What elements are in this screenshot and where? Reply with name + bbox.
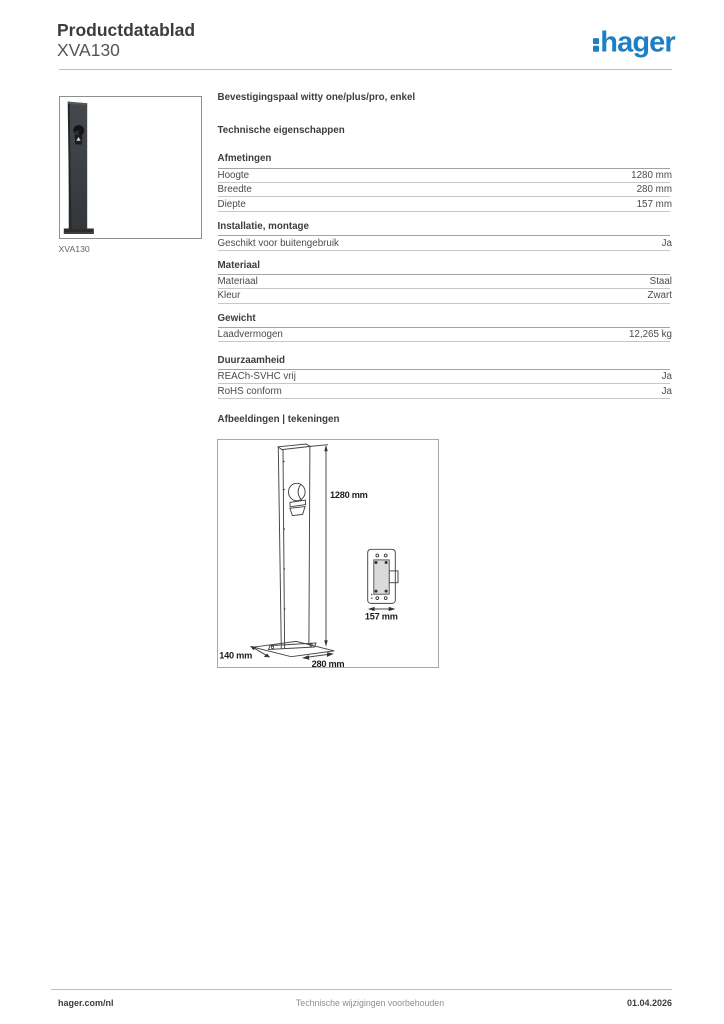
svg-text:140 mm: 140 mm <box>219 651 252 661</box>
svg-text:157 mm: 157 mm <box>364 612 397 622</box>
svg-text:1280 mm: 1280 mm <box>330 490 368 500</box>
svg-text:hager: hager <box>600 26 675 58</box>
svg-text:280 mm: 280 mm <box>311 659 344 667</box>
